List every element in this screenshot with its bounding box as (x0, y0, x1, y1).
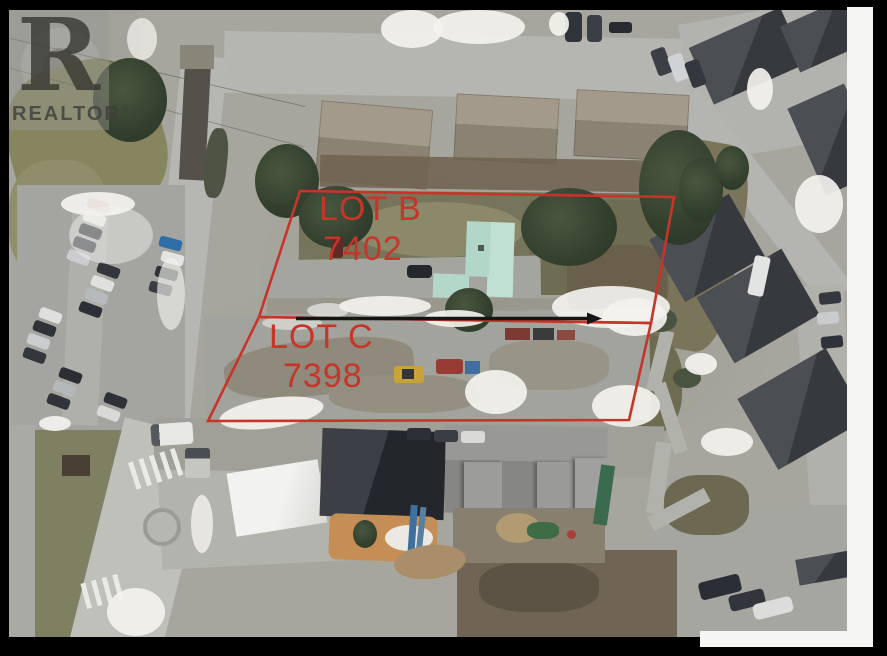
lot-c-number: 7398 (283, 359, 363, 393)
registered-mark: ® (121, 104, 128, 115)
screenshot-frame: LOT B 7402 LOT C 7398 R REALTOR® (0, 0, 887, 656)
page-edge-bottom (700, 631, 873, 647)
lot-c-label: LOT C (269, 320, 374, 354)
realtor-logo-r: R (17, 10, 100, 110)
page-edge-right (847, 7, 873, 640)
aerial-photo: LOT B 7402 LOT C 7398 R REALTOR® (9, 10, 847, 637)
realtor-wordmark: REALTOR® (12, 104, 128, 124)
realtor-wordmark-text: REALTOR (12, 103, 121, 125)
lot-overlay (9, 10, 847, 637)
lot-b-number: 7402 (323, 232, 403, 266)
realtor-watermark: R REALTOR® (9, 10, 109, 130)
lot-b-label: LOT B (319, 192, 422, 226)
